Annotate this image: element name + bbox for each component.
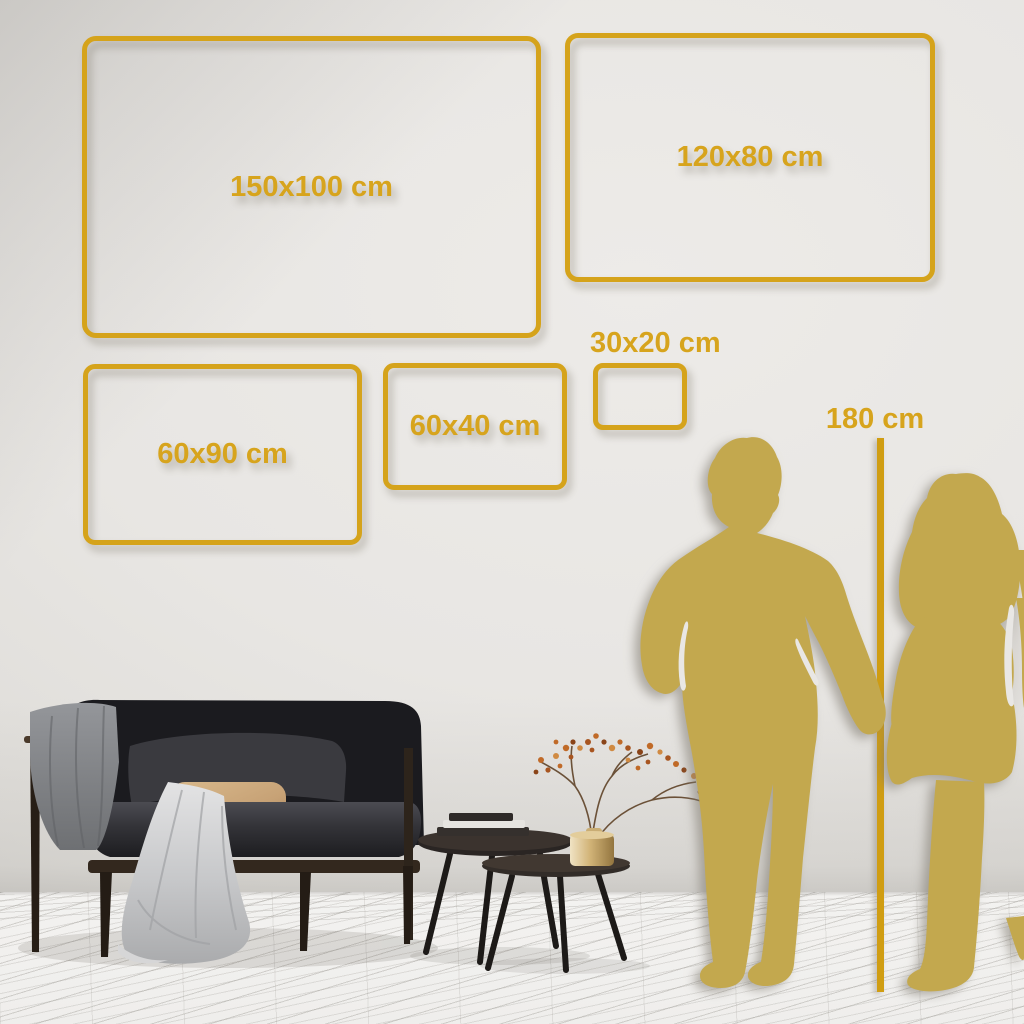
height-reference-label: 180 cm xyxy=(809,403,941,436)
woman-silhouette xyxy=(887,473,1024,991)
size-guide-scene: 150x100 cm 120x80 cm 60x90 cm 60x40 cm 3… xyxy=(0,0,1024,1024)
man-silhouette xyxy=(640,437,885,988)
couple-silhouettes xyxy=(0,0,1024,1024)
